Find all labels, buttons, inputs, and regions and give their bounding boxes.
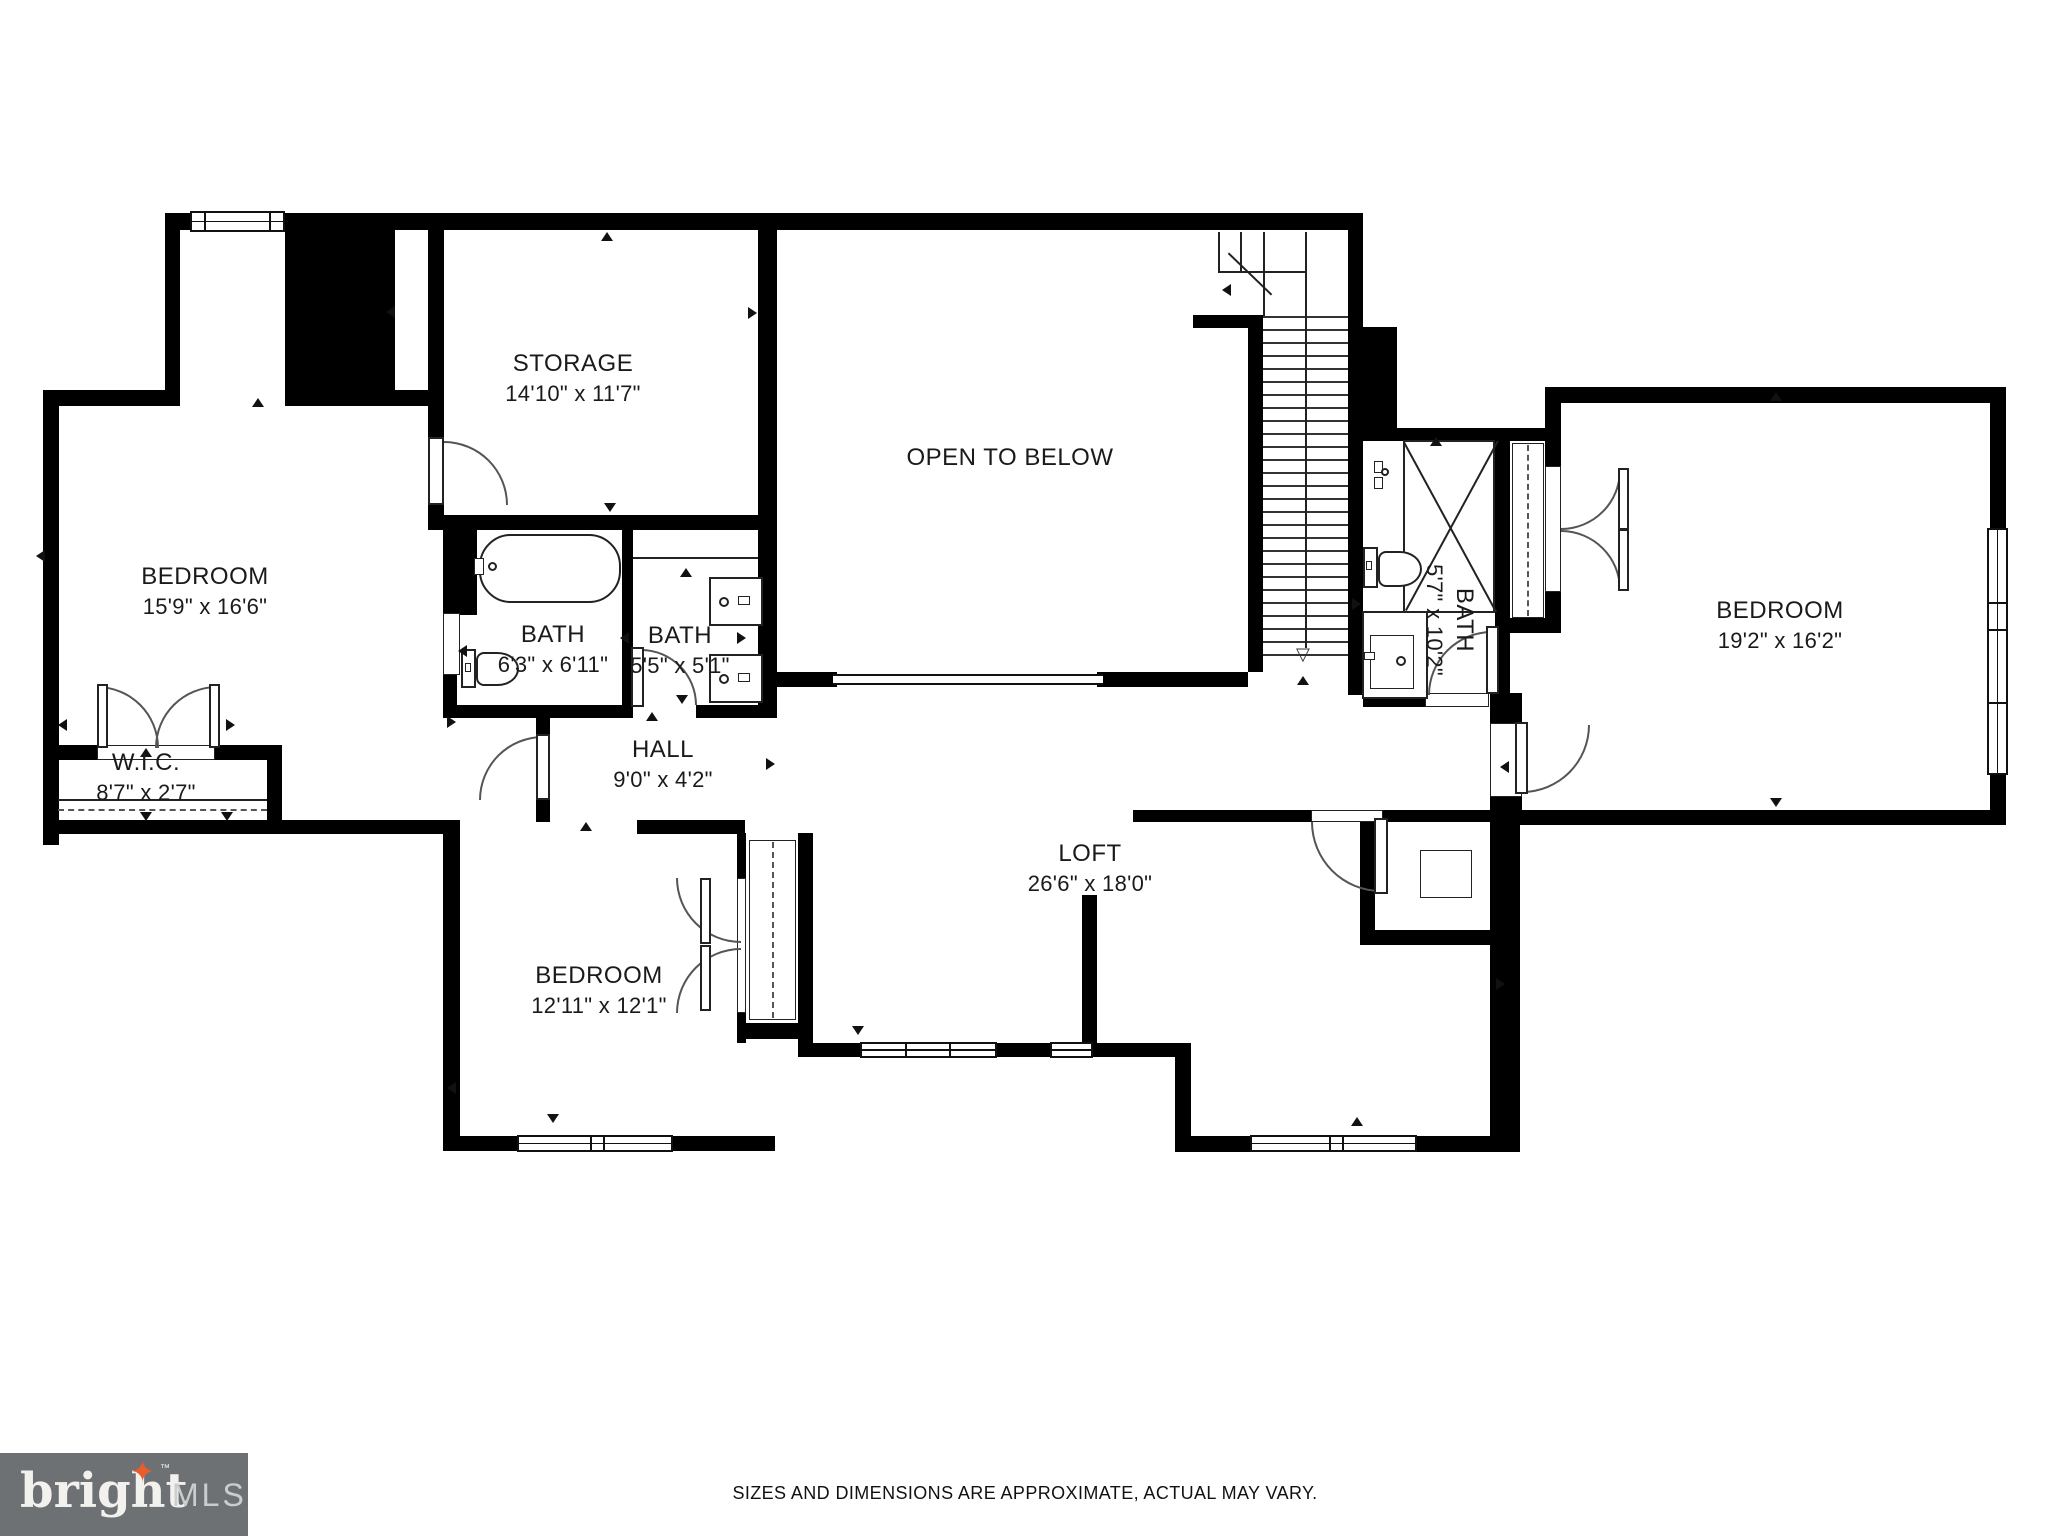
- room-dims: 19'2" x 16'2": [1716, 626, 1844, 656]
- room-name: OPEN TO BELOW: [907, 443, 1114, 473]
- window: [517, 1135, 673, 1152]
- door-leaf: [536, 734, 550, 800]
- door-leaf: [428, 437, 444, 505]
- door-opening: [1425, 693, 1489, 707]
- toilet-button: [1366, 561, 1372, 570]
- closet-door-swing: [1561, 470, 1621, 530]
- direction-marker: [58, 719, 67, 731]
- tub-faucet: [474, 558, 484, 575]
- room-label-wic: W.I.C. 8'7" x 2'7": [96, 748, 196, 808]
- alcove-shelf: [1420, 850, 1472, 898]
- direction-marker: [1496, 978, 1505, 990]
- wall: [1348, 230, 1363, 695]
- room-label-loft: LOFT 26'6" x 18'0": [1028, 839, 1153, 899]
- stair-landing-line: [1263, 232, 1265, 316]
- direction-marker: [580, 822, 592, 831]
- wall: [428, 515, 777, 530]
- direction-marker: [852, 1026, 864, 1035]
- wall: [1490, 810, 2005, 825]
- room-label-hall: HALL 9'0" x 4'2": [613, 735, 713, 795]
- wall: [1097, 672, 1248, 687]
- wall: [1495, 618, 1545, 633]
- room-dims: 5'7" x 10'2": [1419, 564, 1449, 676]
- door-swing: [1311, 822, 1381, 892]
- sink-faucet: [719, 597, 729, 607]
- window: [1987, 528, 2008, 775]
- wall: [1490, 795, 1522, 812]
- direction-marker: [646, 712, 658, 721]
- room-label-bedroom-right: BEDROOM 19'2" x 16'2": [1716, 596, 1844, 656]
- wall: [696, 705, 765, 718]
- open-to-below-railing: [833, 674, 1103, 685]
- door-leaf: [1374, 818, 1388, 894]
- closet-door-swing: [1561, 530, 1621, 590]
- direction-marker: [221, 812, 233, 821]
- room-dims: 26'6" x 18'0": [1028, 869, 1153, 899]
- window: [1250, 1135, 1417, 1152]
- room-dims: 6'3" x 6'11": [498, 650, 608, 680]
- direction-marker: [447, 716, 456, 728]
- vanity-basin: [1370, 635, 1414, 689]
- wall: [1348, 327, 1397, 440]
- sink-soap: [738, 673, 750, 682]
- direction-marker: [748, 307, 757, 319]
- wall: [1383, 810, 1493, 822]
- wall: [1248, 315, 1263, 672]
- direction-marker: [1430, 437, 1442, 446]
- room-dims: 5'5" x 5'1": [630, 651, 730, 681]
- door-leaf: [1515, 722, 1528, 794]
- tub-drain: [488, 562, 497, 571]
- direction-marker: [386, 306, 395, 318]
- wall: [1133, 810, 1313, 822]
- direction-marker: [1297, 676, 1309, 685]
- room-label-bath-left: BATH 6'3" x 6'11": [498, 620, 608, 680]
- direction-marker: [1352, 598, 1361, 610]
- direction-marker: [547, 1114, 559, 1123]
- wall: [165, 213, 180, 393]
- closet-door-leaf: [1618, 529, 1629, 591]
- logo-tm-mark: ™: [160, 1463, 170, 1474]
- room-label-bedroom-bottom: BEDROOM 12'11" x 12'1": [531, 961, 666, 1021]
- door-leaf: [1486, 626, 1499, 694]
- wall: [1360, 930, 1520, 945]
- room-dims: 8'7" x 2'7": [96, 778, 196, 808]
- direction-marker: [604, 503, 616, 512]
- wall: [536, 707, 550, 735]
- wall: [1082, 895, 1097, 1043]
- direction-marker: [140, 812, 152, 821]
- closet-door-leaf: [1618, 468, 1629, 530]
- wall: [1490, 693, 1522, 725]
- disclaimer-text: SIZES AND DIMENSIONS ARE APPROXIMATE, AC…: [732, 1483, 1317, 1504]
- door-swing: [479, 736, 543, 800]
- direction-marker: [1351, 1117, 1363, 1126]
- vanity-sink: [709, 577, 763, 626]
- closet-rod: [772, 842, 774, 1018]
- direction-marker: [1222, 284, 1231, 296]
- room-name: STORAGE: [505, 349, 640, 379]
- stair-winder-line: [1228, 252, 1273, 295]
- wall: [737, 1023, 813, 1039]
- direction-marker: [252, 398, 264, 407]
- direction-marker: [36, 550, 45, 562]
- room-name: BEDROOM: [1716, 596, 1844, 626]
- stair-landing-line: [1218, 271, 1306, 273]
- room-label-bath-right: BATH 5'7" x 10'2": [1419, 564, 1479, 676]
- direction-marker: [766, 758, 775, 770]
- wall: [536, 798, 550, 822]
- room-label-storage: STORAGE 14'10" x 11'7": [505, 349, 640, 409]
- wall: [1545, 588, 1561, 633]
- direction-marker: [1770, 798, 1782, 807]
- sink-soap: [1364, 652, 1375, 660]
- direction-marker: [680, 568, 692, 577]
- wall: [637, 820, 745, 834]
- wall: [443, 820, 460, 1150]
- door-leaf: [209, 684, 220, 748]
- shower-head: [1381, 468, 1389, 476]
- wall: [43, 745, 97, 760]
- wic-rod-line: [58, 809, 267, 811]
- room-dims: 15'9" x 16'6": [141, 592, 269, 622]
- wall: [43, 390, 180, 406]
- room-name: BATH: [1449, 564, 1479, 676]
- window: [190, 211, 285, 232]
- sink-soap: [738, 596, 750, 605]
- direction-marker: [1770, 392, 1782, 401]
- logo-suffix-text: MLS: [172, 1477, 247, 1514]
- wall: [1490, 812, 1520, 1152]
- toilet-button: [465, 663, 471, 672]
- direction-marker: [601, 232, 613, 241]
- sink-faucet: [1396, 656, 1406, 666]
- wall: [285, 390, 443, 406]
- shower-valve: [1374, 477, 1383, 489]
- room-name: BEDROOM: [531, 961, 666, 991]
- door-opening: [1311, 810, 1383, 822]
- room-name: LOFT: [1028, 839, 1153, 869]
- room-name: HALL: [613, 735, 713, 765]
- brightmls-logo: bright ✦ ™ MLS: [0, 1453, 248, 1536]
- wall: [752, 672, 837, 687]
- wall: [43, 390, 59, 845]
- room-label-bedroom-left: BEDROOM 15'9" x 16'6": [141, 562, 269, 622]
- closet-rod: [1527, 445, 1529, 616]
- direction-marker: [1500, 761, 1509, 773]
- room-name: BEDROOM: [141, 562, 269, 592]
- wall: [737, 833, 746, 878]
- stair-direction-line: [1305, 232, 1307, 648]
- closet-door-leaf: [700, 878, 711, 944]
- direction-marker: [620, 632, 629, 644]
- bath-ledge-line: [633, 557, 758, 559]
- room-name: BATH: [498, 620, 608, 650]
- room-dims: 9'0" x 4'2": [613, 765, 713, 795]
- window: [1050, 1042, 1093, 1058]
- logo-star-icon: ✦: [130, 1455, 155, 1490]
- wall: [43, 820, 460, 834]
- room-name: BATH: [630, 621, 730, 651]
- door-swing: [444, 441, 508, 505]
- stair-down-arrow: ▽: [1296, 644, 1310, 665]
- door-leaf: [97, 684, 108, 748]
- wall: [758, 213, 777, 718]
- room-label-open-to-below: OPEN TO BELOW: [907, 443, 1114, 473]
- door-opening: [443, 613, 460, 675]
- direction-marker: [226, 719, 235, 731]
- room-dims: 14'10" x 11'7": [505, 379, 640, 409]
- room-dims: 12'11" x 12'1": [531, 991, 666, 1021]
- door-swing: [1522, 725, 1590, 793]
- direction-marker: [458, 645, 467, 657]
- toilet-bowl: [1378, 551, 1422, 587]
- bathtub: [479, 534, 621, 603]
- door-swing: [155, 686, 217, 748]
- room-name: W.I.C.: [96, 748, 196, 778]
- direction-marker: [676, 695, 688, 704]
- room-label-bath-middle: BATH 5'5" x 5'1": [630, 621, 730, 681]
- closet-door-leaf: [700, 945, 711, 1011]
- stair-landing-line: [1218, 232, 1220, 272]
- floor-plan: ▽: [0, 0, 2048, 1536]
- window: [860, 1042, 997, 1058]
- direction-marker: [737, 632, 746, 644]
- direction-marker: [447, 1082, 456, 1094]
- wall: [1193, 315, 1253, 328]
- door-opening: [1545, 466, 1561, 592]
- wall: [443, 530, 477, 615]
- chimney-mass: [285, 213, 395, 405]
